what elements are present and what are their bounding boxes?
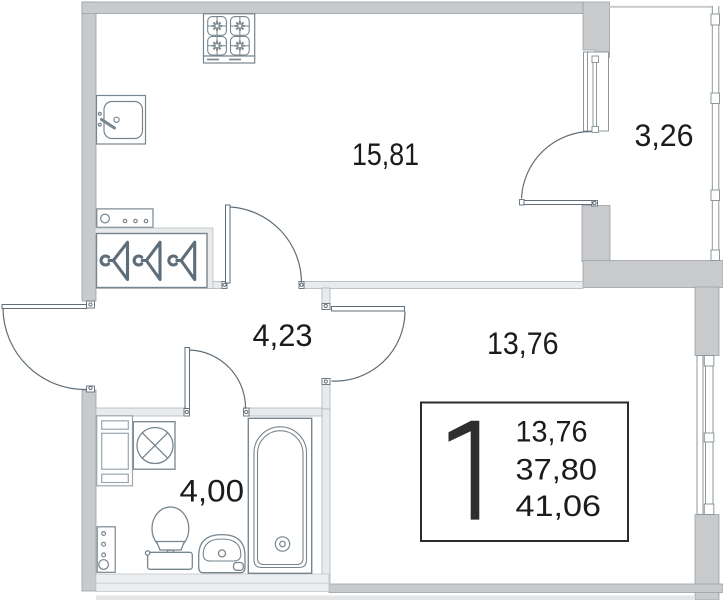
svg-text:13,76: 13,76 [516,416,588,449]
svg-text:13,76: 13,76 [487,325,559,361]
svg-text:15,81: 15,81 [352,136,419,172]
svg-text:4,23: 4,23 [253,317,313,353]
svg-text:4,00: 4,00 [180,473,245,509]
svg-text:41,06: 41,06 [516,490,602,523]
svg-text:37,80: 37,80 [516,454,598,487]
svg-text:3,26: 3,26 [635,117,694,153]
